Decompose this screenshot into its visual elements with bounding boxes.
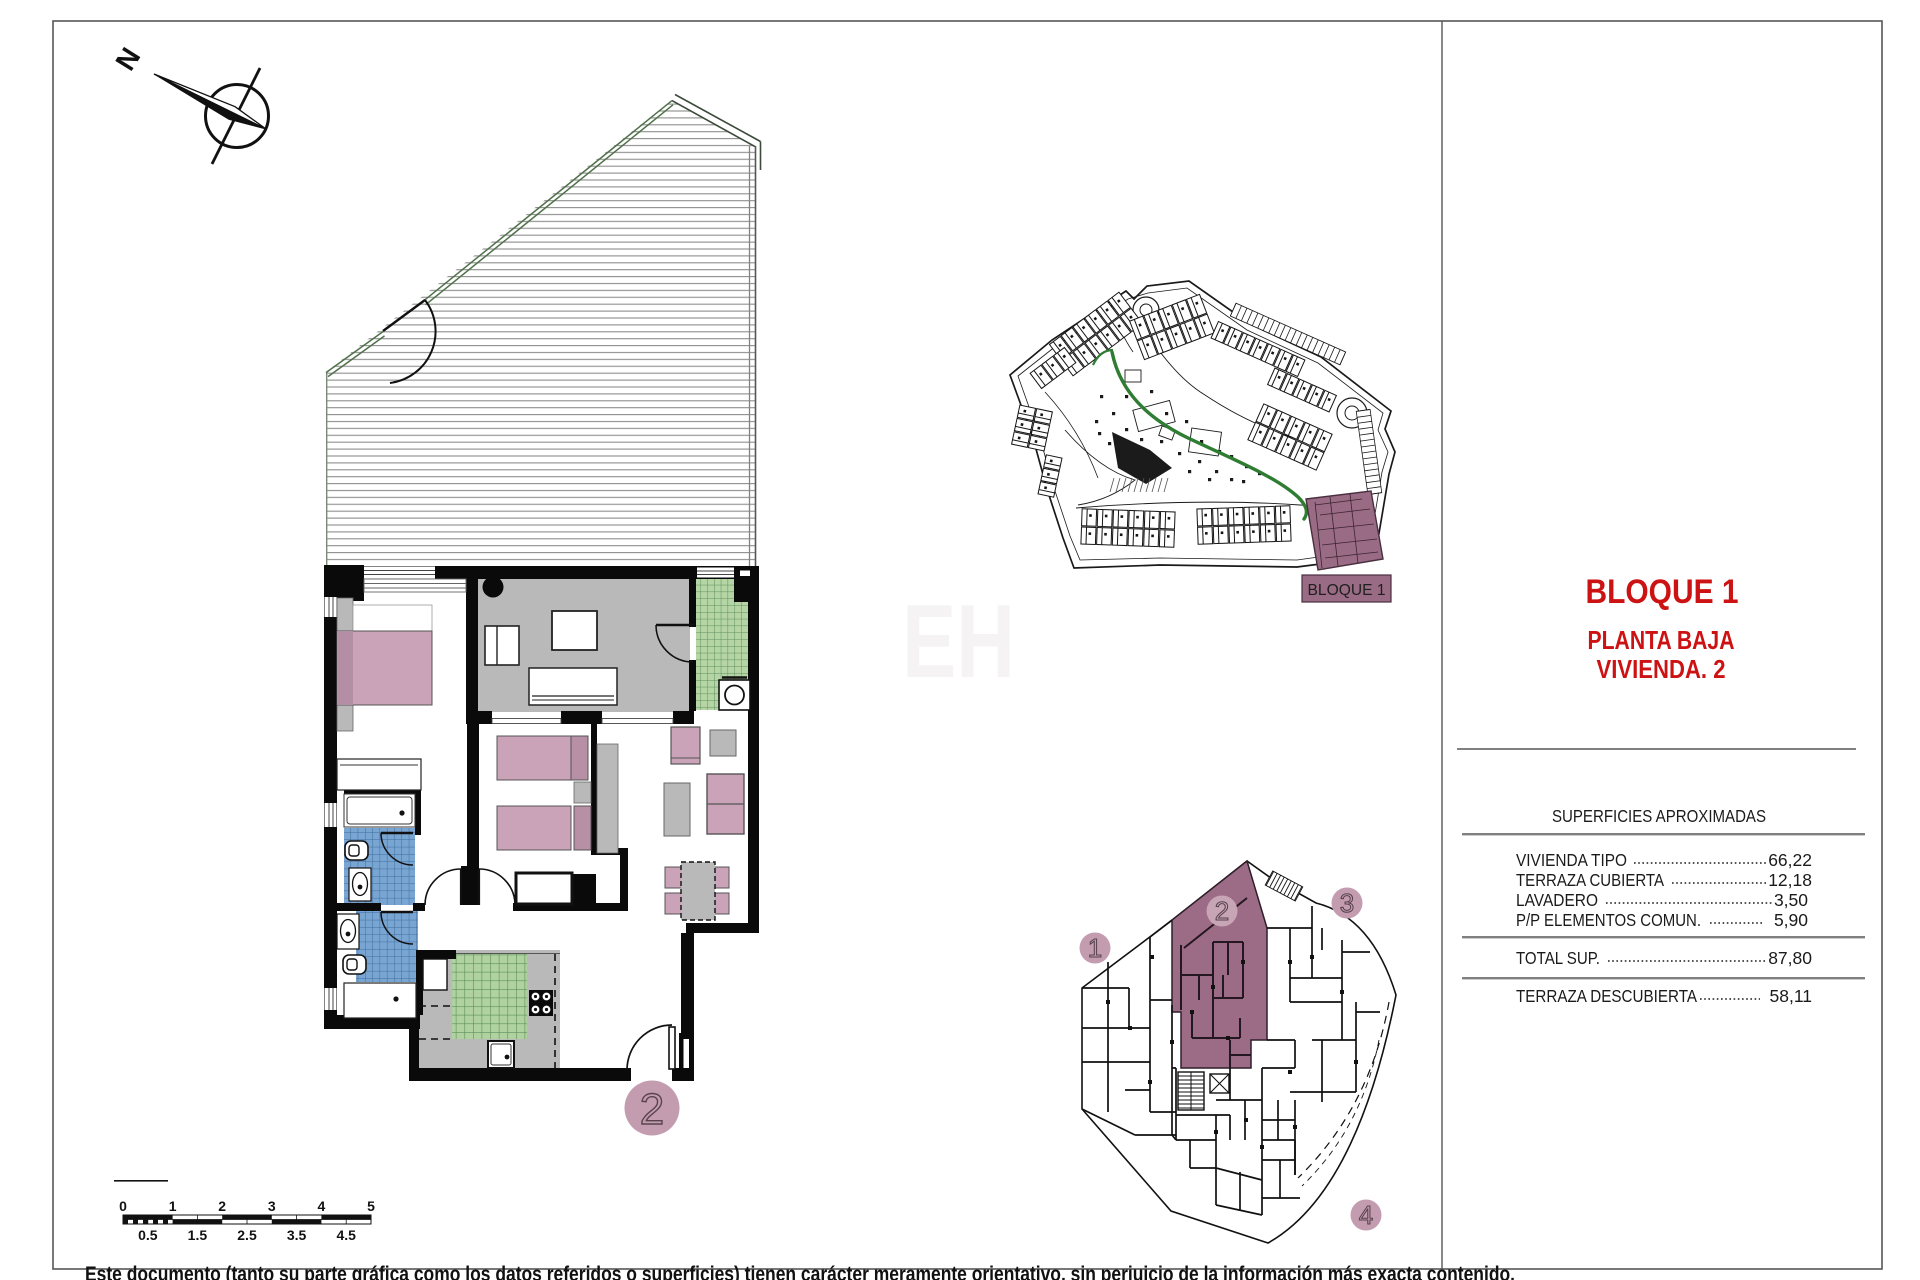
svg-text:LAVADERO: LAVADERO xyxy=(1516,890,1598,910)
svg-text:1: 1 xyxy=(169,1198,177,1214)
svg-text:66,22: 66,22 xyxy=(1768,850,1812,870)
svg-text:EH: EH xyxy=(902,584,1015,700)
svg-text:TOTAL SUP.: TOTAL SUP. xyxy=(1516,948,1600,968)
svg-text:TERRAZA DESCUBIERTA: TERRAZA DESCUBIERTA xyxy=(1516,986,1697,1006)
svg-text:SUPERFICIES APROXIMADAS: SUPERFICIES APROXIMADAS xyxy=(1552,806,1766,826)
svg-text:4: 4 xyxy=(318,1198,326,1214)
svg-text:12,18: 12,18 xyxy=(1768,870,1812,890)
svg-text:3.5: 3.5 xyxy=(287,1227,307,1243)
svg-text:Este documento (tanto su parte: Este documento (tanto su parte gráfica c… xyxy=(85,1263,1515,1280)
svg-text:0: 0 xyxy=(119,1198,127,1214)
svg-text:4: 4 xyxy=(1359,1200,1373,1230)
svg-text:2.5: 2.5 xyxy=(237,1227,257,1243)
svg-text:0.5: 0.5 xyxy=(138,1227,158,1243)
svg-text:5: 5 xyxy=(367,1198,375,1214)
svg-text:VIVIENDA TIPO: VIVIENDA TIPO xyxy=(1516,850,1627,870)
svg-text:VIVIENDA. 2: VIVIENDA. 2 xyxy=(1597,654,1726,684)
svg-text:PLANTA BAJA: PLANTA BAJA xyxy=(1588,625,1735,655)
svg-text:3: 3 xyxy=(268,1198,276,1214)
svg-text:TERRAZA CUBIERTA: TERRAZA CUBIERTA xyxy=(1516,870,1664,890)
svg-text:2: 2 xyxy=(218,1198,226,1214)
svg-text:1.5: 1.5 xyxy=(188,1227,208,1243)
svg-text:3: 3 xyxy=(1340,888,1354,918)
svg-text:P/P ELEMENTOS COMUN.: P/P ELEMENTOS COMUN. xyxy=(1516,910,1701,930)
svg-text:58,11: 58,11 xyxy=(1770,986,1813,1006)
svg-text:3,50: 3,50 xyxy=(1774,890,1808,910)
svg-text:BLOQUE 1: BLOQUE 1 xyxy=(1586,573,1739,611)
svg-text:2: 2 xyxy=(640,1085,664,1134)
svg-text:1: 1 xyxy=(1088,933,1102,963)
svg-text:4.5: 4.5 xyxy=(336,1227,356,1243)
svg-text:2: 2 xyxy=(1215,896,1229,926)
svg-text:5,90: 5,90 xyxy=(1774,910,1808,930)
svg-text:BLOQUE 1: BLOQUE 1 xyxy=(1308,582,1386,599)
svg-text:87,80: 87,80 xyxy=(1768,948,1812,968)
